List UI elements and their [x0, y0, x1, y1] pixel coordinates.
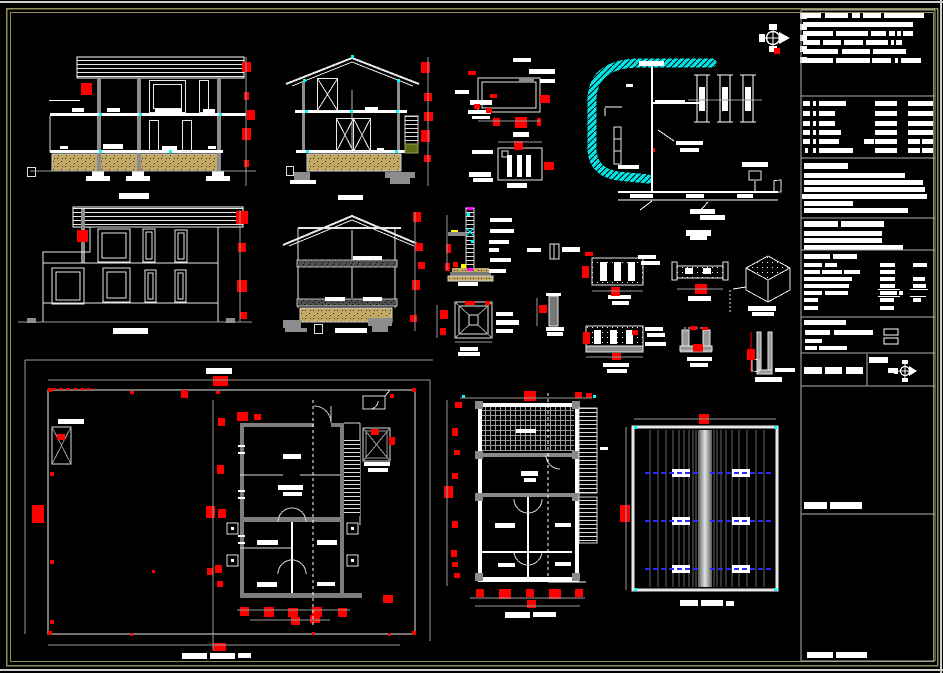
first-floor-plan: [227, 406, 362, 598]
drawing-section-a: [28, 57, 247, 181]
cad-canvas[interactable]: [0, 0, 943, 673]
detail-site-utility: [592, 63, 761, 180]
cad-sheet: [0, 0, 943, 673]
detail-tank-section: [498, 148, 542, 180]
detail-footing-plan: [455, 302, 492, 338]
drawing-front-elevation: [27, 207, 243, 323]
detail-column-section: [546, 244, 561, 326]
north-arrow-icon: [759, 24, 790, 52]
detail-beam-3: [586, 326, 643, 352]
title-block: [884, 329, 898, 344]
second-floor-plan: [475, 401, 597, 582]
titleblock-checkbox: [884, 329, 898, 335]
drawing-section-c: [283, 216, 420, 334]
detail-beam-2: [672, 262, 728, 280]
detail-beam-1: [592, 258, 643, 285]
titleblock-north-arrow-icon: [894, 360, 917, 382]
detail-tank-plan: [478, 78, 540, 112]
titleblock-checkbox: [884, 338, 898, 344]
generated-annotations: [18, 10, 935, 661]
drawing-section-b: [286, 58, 419, 184]
roof-plan: [633, 427, 777, 590]
